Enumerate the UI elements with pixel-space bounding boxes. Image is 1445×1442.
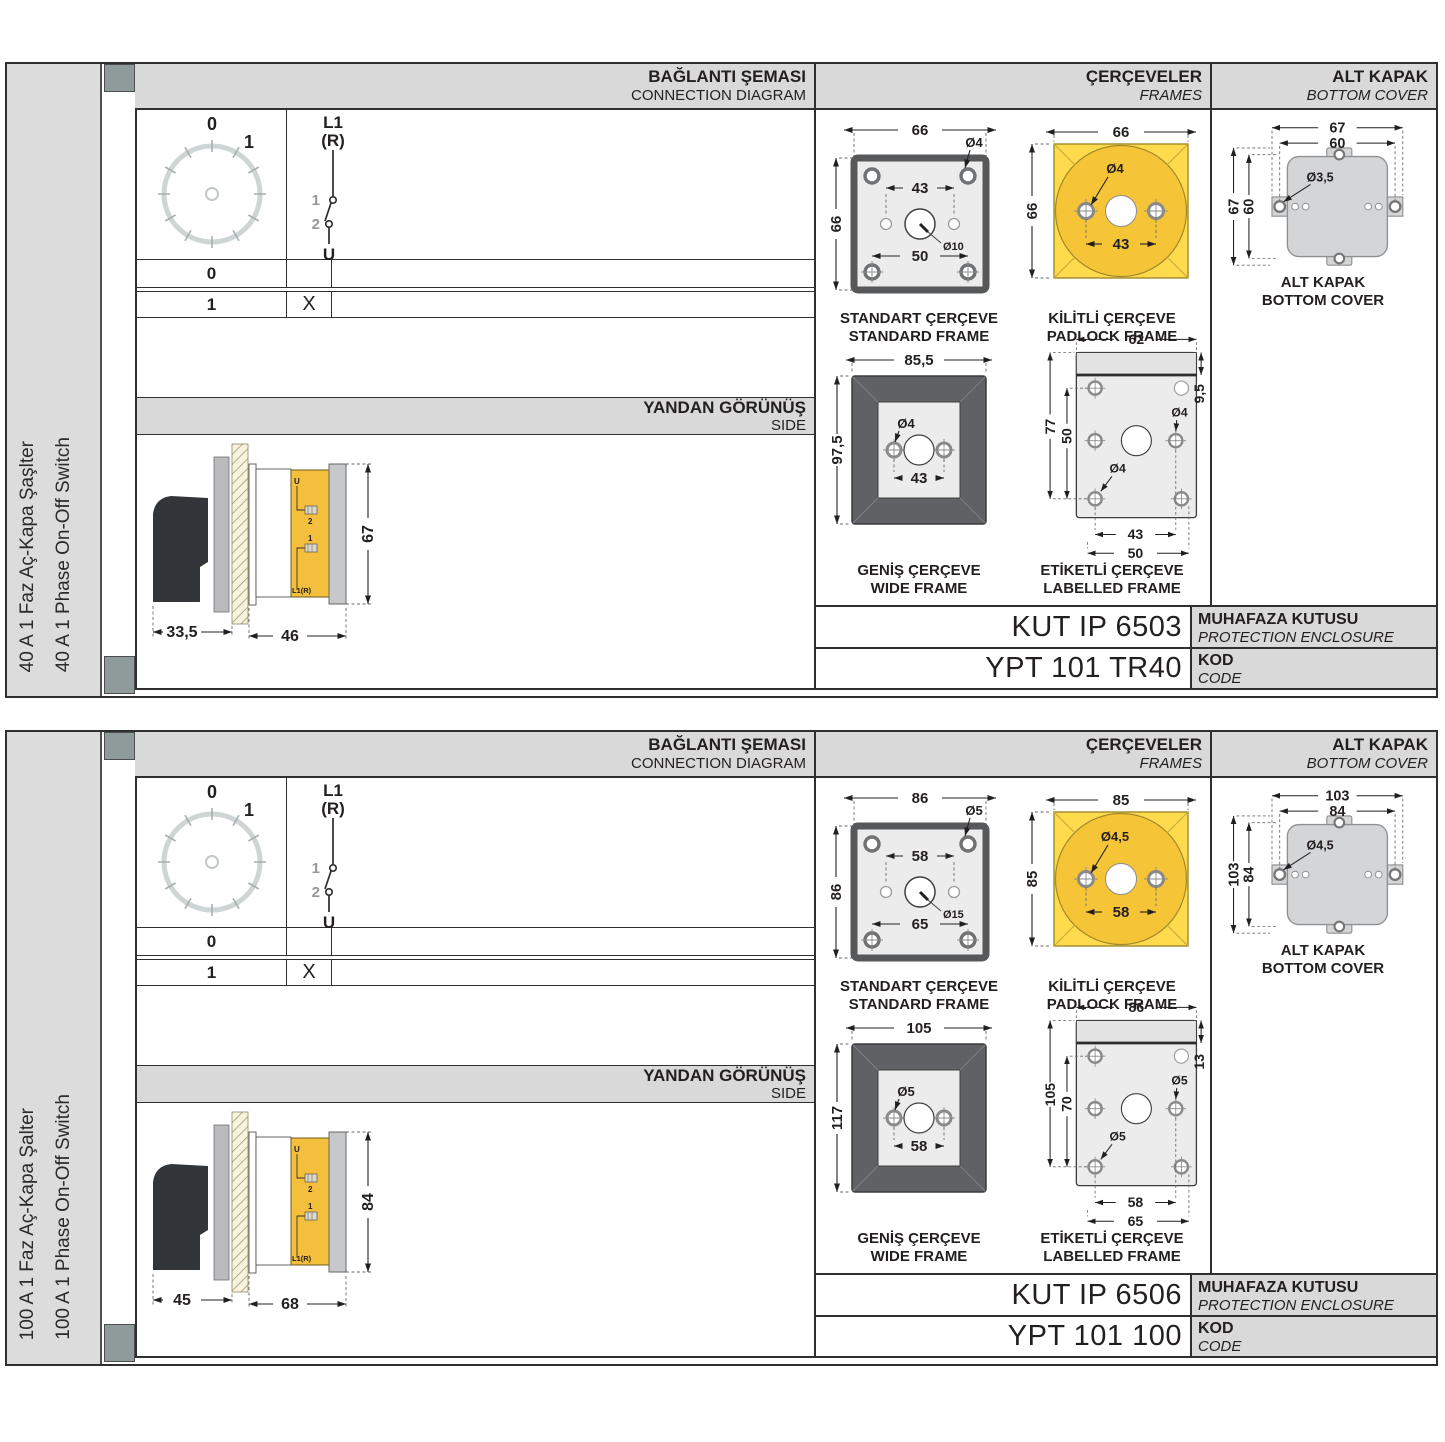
side-view-tr: YANDAN GÖRÜNÜŞ (643, 398, 806, 417)
switch-dial-drawing: 0 1 (137, 110, 287, 260)
enclosure-label-tr: MUHAFAZA KUTUSU (1198, 610, 1436, 629)
bottom-cover-panel: 103 84 103 84 Ø4,5 ALT KAPAK BOTTOM COVE… (1210, 778, 1436, 1273)
dim-w1: 103 (1325, 789, 1349, 805)
dim-height: 86 (828, 884, 845, 901)
frames-panel: Ø15 86 Ø5 58 65 86 STANDART ÇERÇEVE STAN… (814, 778, 1210, 1273)
dim-hole-a: Ø4 (1171, 405, 1187, 419)
header-bottom-cover: ALT KAPAK BOTTOM COVER (1210, 64, 1436, 110)
dim-outer: 65 (1128, 1213, 1144, 1229)
contact-mark (287, 260, 332, 287)
schematic-contact-1: 1 (312, 192, 320, 209)
index-tab-top (104, 732, 135, 760)
product-row-100a: 100 A 1 Faz Aç-Kapa Şalter 100 A 1 Phase… (5, 730, 1438, 1366)
side-view-tr: YANDAN GÖRÜNÜŞ (643, 1066, 806, 1085)
dim-center-hole: Ø15 (943, 909, 964, 921)
label-strip (1076, 1021, 1196, 1044)
side-view-band: YANDAN GÖRÜNÜŞ SIDE (137, 1065, 814, 1103)
product-row-40a: 40 A 1 Faz Aç-Kapa Şaşlter 40 A 1 Phase … (5, 62, 1438, 698)
index-tab-bottom (104, 656, 135, 694)
body-label-l1r: L1(R) (292, 586, 312, 595)
dim-body-depth: 46 (281, 628, 299, 645)
schematic-r: (R) (321, 131, 345, 150)
caption-tr: STANDART ÇERÇEVE (820, 978, 1018, 996)
caption-en: BOTTOM COVER (1220, 960, 1426, 978)
switch-schematic: L1 (R) 1 2 U (293, 780, 413, 930)
dim-hole: Ø5 (897, 1084, 914, 1099)
dim-w2: 84 (1329, 804, 1345, 820)
standard-frame-drawing: Ø15 86 Ø5 58 65 86 (824, 784, 1014, 981)
center-hole (1106, 196, 1137, 227)
caption-tr: STANDART ÇERÇEVE (820, 310, 1018, 328)
body-label-1: 1 (308, 1202, 313, 1211)
standard-frame-drawing: Ø10 66 Ø4 43 50 66 (824, 116, 1014, 313)
frames-panel: Ø10 66 Ø4 43 50 66 STANDART ÇERÇEVE STAN… (814, 110, 1210, 605)
code-label: KOD CODE (1190, 649, 1436, 688)
position-label: 1 (137, 960, 287, 985)
labelled-frame-drawing: 62 9,5 77 50 Ø4 Ø4 43 50 (1018, 330, 1206, 572)
dim-height: 117 (829, 1106, 846, 1130)
dial-position-0: 0 (207, 782, 217, 802)
position-label: 0 (137, 260, 287, 287)
position-label: 1 (137, 292, 287, 317)
schematic-contact-2: 2 (312, 884, 320, 901)
wide-frame-drawing: Ø5 58 105 117 (824, 1014, 1014, 1214)
dim-body-depth: 68 (281, 1296, 299, 1313)
schematic-contact-1: 1 (312, 860, 320, 877)
header-frames-en: FRAMES (1139, 755, 1202, 773)
dial-position-0: 0 (207, 114, 217, 134)
enclosure-code: KUT IP 6503 (816, 607, 1190, 647)
caption-tr: KİLİTLİ ÇERÇEVE (1014, 978, 1210, 996)
center-hole (1121, 426, 1151, 456)
caption-tr: KİLİTLİ ÇERÇEVE (1014, 310, 1210, 328)
dim-height: 66 (1024, 203, 1041, 220)
body-label-1: 1 (308, 534, 313, 543)
body-label-u: U (294, 477, 300, 486)
padlock-frame-drawing: 85 Ø4,5 58 85 (1018, 784, 1208, 981)
product-title-en: 40 A 1 Phase On-Off Switch (53, 437, 75, 672)
dim-corner-hole: Ø4 (965, 135, 983, 150)
dim-h2: 84 (1242, 867, 1258, 883)
enclosure-label: MUHAFAZA KUTUSU PROTECTION ENCLOSURE (1190, 607, 1436, 647)
bottom-cover-drawing: 67 60 67 60 Ø3,5 (1222, 118, 1422, 274)
mounting-plate (214, 457, 229, 612)
caption-tr: ETİKETLİ ÇERÇEVE (1014, 1230, 1210, 1248)
switch-schematic-cell: L1 (R) 1 2 U (287, 110, 814, 260)
switch-knob (153, 1164, 208, 1270)
dim-outer: 65 (912, 916, 929, 933)
dim-height: 66 (828, 216, 845, 233)
dim-h1: 67 (1226, 199, 1242, 215)
caption-tr: ALT KAPAK (1220, 942, 1426, 960)
dim-inner: 43 (1113, 236, 1130, 253)
dim-inner-height: 70 (1059, 1096, 1075, 1112)
header-frames: ÇERÇEVELER FRAMES (814, 732, 1210, 778)
enclosure-row: KUT IP 6503 MUHAFAZA KUTUSU PROTECTION E… (814, 605, 1436, 647)
header-frames-en: FRAMES (1139, 87, 1202, 105)
panel-hatched (232, 444, 248, 624)
side-view-en: SIDE (771, 417, 806, 434)
dim-inner: 58 (911, 1138, 928, 1155)
caption-en: LABELLED FRAME (1014, 580, 1210, 598)
labelled-frame-caption: ETİKETLİ ÇERÇEVE LABELLED FRAME (1014, 1230, 1210, 1266)
dim-outer: 50 (912, 248, 929, 265)
side-view-drawing: U 2 1 L1(R) 84 45 68 (147, 1108, 387, 1313)
dim-inner: 58 (912, 848, 929, 865)
dim-width: 66 (912, 122, 929, 139)
rear-plate (329, 464, 346, 604)
position-label: 0 (137, 928, 287, 955)
dim-inner-height: 50 (1059, 428, 1075, 444)
enclosure-label-en: PROTECTION ENCLOSURE (1198, 629, 1436, 646)
panel-hatched (232, 1112, 248, 1292)
position-table-row-1: 1 X (137, 291, 814, 318)
code-label-en: CODE (1198, 670, 1436, 687)
code-row: YPT 101 TR40 KOD CODE (814, 647, 1436, 690)
table-filler (332, 260, 814, 287)
dim-hole-a: Ø5 (1171, 1073, 1187, 1087)
header-cover-en: BOTTOM COVER (1307, 755, 1428, 773)
contact-mark: X (287, 292, 332, 317)
index-tab-bottom (104, 1324, 135, 1362)
dim-strip: 13 (1191, 1054, 1206, 1070)
code-label-en: CODE (1198, 1338, 1436, 1355)
dial-cell: 0 1 (137, 110, 287, 260)
switch-knob (153, 496, 208, 602)
table-filler (332, 292, 814, 317)
dim-hole-b: Ø5 (1109, 1130, 1125, 1144)
caption-tr: GENİŞ ÇERÇEVE (820, 1230, 1018, 1248)
caption-tr: ETİKETLİ ÇERÇEVE (1014, 562, 1210, 580)
product-code: YPT 101 TR40 (816, 649, 1190, 688)
center-hole (904, 1103, 934, 1133)
code-label: KOD CODE (1190, 1317, 1436, 1356)
dim-inner: 43 (911, 470, 928, 487)
dim-inner: 58 (1128, 1194, 1144, 1210)
schematic-l1: L1 (323, 113, 343, 132)
header-cover-tr: ALT KAPAK (1332, 735, 1428, 755)
caption-en: WIDE FRAME (820, 580, 1018, 598)
wide-frame-caption: GENİŞ ÇERÇEVE WIDE FRAME (820, 1230, 1018, 1266)
connection-diagram-panel: 0 1 L1 (R) 1 2 U 0 1 X (135, 778, 814, 1358)
enclosure-row: KUT IP 6506 MUHAFAZA KUTUSU PROTECTION E… (814, 1273, 1436, 1315)
table-filler (332, 928, 814, 955)
body-label-2: 2 (308, 1185, 313, 1194)
dim-hole: Ø4 (1106, 161, 1124, 176)
padlock-frame-drawing: 66 Ø4 43 66 (1018, 116, 1208, 313)
dim-hole: Ø4,5 (1307, 839, 1334, 853)
dim-width: 86 (1129, 999, 1145, 1015)
dim-width: 86 (912, 790, 929, 807)
contact-mark (287, 928, 332, 955)
caption-tr: GENİŞ ÇERÇEVE (820, 562, 1018, 580)
dim-height: 85 (1024, 871, 1041, 888)
dim-w1: 67 (1329, 121, 1345, 137)
dial-position-1: 1 (244, 800, 254, 820)
standard-frame-caption: STANDART ÇERÇEVE STANDARD FRAME (820, 978, 1018, 1014)
position-table-row-0: 0 (137, 928, 814, 956)
dim-knob-depth: 33,5 (166, 624, 197, 641)
dim-h1: 103 (1226, 863, 1242, 887)
dim-height: 105 (1042, 1083, 1058, 1107)
dim-hole: Ø3,5 (1307, 171, 1334, 185)
sidebar: 100 A 1 Faz Aç-Kapa Şalter 100 A 1 Phase… (7, 732, 102, 1364)
header-cover-tr: ALT KAPAK (1332, 67, 1428, 87)
dim-inner: 43 (1128, 526, 1144, 542)
connection-diagram-panel: 0 1 L1 (R) 1 2 U 0 1 X (135, 110, 814, 690)
rear-plate (329, 1132, 346, 1272)
schematic-contact-2: 2 (312, 216, 320, 233)
dim-w2: 60 (1329, 136, 1345, 152)
table-filler (332, 960, 814, 985)
dim-hole: Ø4,5 (1101, 829, 1129, 844)
dial-ticks (158, 140, 266, 248)
caption-en: LABELLED FRAME (1014, 1248, 1210, 1266)
header-cover-en: BOTTOM COVER (1307, 87, 1428, 105)
schematic-r: (R) (321, 799, 345, 818)
switch-housing (256, 1137, 291, 1265)
dial-position-1: 1 (244, 132, 254, 152)
enclosure-label-en: PROTECTION ENCLOSURE (1198, 1297, 1436, 1314)
dim-width: 105 (906, 1020, 931, 1037)
header-frames-tr: ÇERÇEVELER (1086, 67, 1202, 87)
dim-inner: 43 (912, 180, 929, 197)
code-label-tr: KOD (1198, 1319, 1436, 1338)
position-table-row-1: 1 X (137, 959, 814, 986)
dim-hole-b: Ø4 (1109, 462, 1125, 476)
mounting-plate (214, 1125, 229, 1280)
switch-dial-drawing: 0 1 (137, 778, 287, 928)
standard-frame-caption: STANDART ÇERÇEVE STANDARD FRAME (820, 310, 1018, 346)
header-frames: ÇERÇEVELER FRAMES (814, 64, 1210, 110)
caption-tr: ALT KAPAK (1220, 274, 1426, 292)
product-title-en: 100 A 1 Phase On-Off Switch (53, 1094, 75, 1340)
dim-width: 85 (1113, 792, 1130, 809)
body-label-u: U (294, 1145, 300, 1154)
product-title-tr: 40 A 1 Faz Aç-Kapa Şaşlter (17, 441, 39, 672)
dim-knob-depth: 45 (173, 1292, 191, 1309)
enclosure-label-tr: MUHAFAZA KUTUSU (1198, 1278, 1436, 1297)
header-connection-diagram: BAĞLANTI ŞEMASI CONNECTION DIAGRAM (135, 64, 814, 110)
header-connection-tr: BAĞLANTI ŞEMASI (648, 67, 806, 87)
labelled-frame-drawing: 86 13 105 70 Ø5 Ø5 58 65 (1018, 998, 1206, 1240)
dim-height: 67 (360, 525, 377, 543)
bottom-cover-panel: 67 60 67 60 Ø3,5 ALT KAPAK BOTTOM COVER (1210, 110, 1436, 605)
caption-en: STANDARD FRAME (820, 996, 1018, 1014)
dim-height: 97,5 (829, 435, 846, 464)
caption-en: STANDARD FRAME (820, 328, 1018, 346)
enclosure-label: MUHAFAZA KUTUSU PROTECTION ENCLOSURE (1190, 1275, 1436, 1315)
dim-strip: 9,5 (1191, 384, 1206, 404)
switch-schematic-cell: L1 (R) 1 2 U (287, 778, 814, 928)
header-bottom-cover: ALT KAPAK BOTTOM COVER (1210, 732, 1436, 778)
enclosure-code: KUT IP 6506 (816, 1275, 1190, 1315)
dim-width: 66 (1113, 124, 1130, 141)
product-code: YPT 101 100 (816, 1317, 1190, 1356)
bottom-cover-caption: ALT KAPAK BOTTOM COVER (1220, 942, 1426, 978)
dial-ticks (158, 808, 266, 916)
code-row: YPT 101 100 KOD CODE (814, 1315, 1436, 1358)
caption-en: BOTTOM COVER (1220, 292, 1426, 310)
wide-frame-caption: GENİŞ ÇERÇEVE WIDE FRAME (820, 562, 1018, 598)
dim-h2: 60 (1242, 199, 1258, 215)
dim-height: 77 (1042, 419, 1058, 435)
dim-height: 84 (360, 1193, 377, 1211)
index-tab-top (104, 64, 135, 92)
side-view-drawing: U 2 1 L1(R) 67 33,5 46 (147, 440, 387, 645)
position-table-row-0: 0 (137, 260, 814, 288)
code-label-tr: KOD (1198, 651, 1436, 670)
switch-housing (256, 469, 291, 597)
header-frames-tr: ÇERÇEVELER (1086, 735, 1202, 755)
product-title-tr: 100 A 1 Faz Aç-Kapa Şalter (17, 1108, 39, 1340)
center-hole (1121, 1094, 1151, 1124)
header-connection-tr: BAĞLANTI ŞEMASI (648, 735, 806, 755)
caption-en: WIDE FRAME (820, 1248, 1018, 1266)
side-view-band: YANDAN GÖRÜNÜŞ SIDE (137, 397, 814, 435)
dim-outer: 50 (1128, 545, 1144, 561)
center-hole (904, 435, 934, 465)
labelled-frame-caption: ETİKETLİ ÇERÇEVE LABELLED FRAME (1014, 562, 1210, 598)
dim-width: 85,5 (904, 352, 933, 369)
schematic-l1: L1 (323, 781, 343, 800)
center-hole (1106, 864, 1137, 895)
header-connection-diagram: BAĞLANTI ŞEMASI CONNECTION DIAGRAM (135, 732, 814, 778)
header-connection-en: CONNECTION DIAGRAM (631, 87, 806, 105)
contact-mark: X (287, 960, 332, 985)
dial-cell: 0 1 (137, 778, 287, 928)
dim-inner: 58 (1113, 904, 1130, 921)
side-view-en: SIDE (771, 1085, 806, 1102)
header-connection-en: CONNECTION DIAGRAM (631, 755, 806, 773)
dim-hole: Ø4 (897, 416, 915, 431)
dim-width: 62 (1129, 331, 1145, 347)
dim-center-hole: Ø10 (943, 241, 964, 253)
wide-frame-drawing: Ø4 43 85,5 97,5 (824, 346, 1014, 546)
switch-schematic: L1 (R) 1 2 U (293, 112, 413, 262)
body-label-l1r: L1(R) (292, 1254, 312, 1263)
bottom-cover-drawing: 103 84 103 84 Ø4,5 (1222, 786, 1422, 942)
sidebar: 40 A 1 Faz Aç-Kapa Şaşlter 40 A 1 Phase … (7, 64, 102, 696)
bottom-cover-caption: ALT KAPAK BOTTOM COVER (1220, 274, 1426, 310)
body-label-2: 2 (308, 517, 313, 526)
dim-corner-hole: Ø5 (965, 803, 982, 818)
label-strip (1076, 353, 1196, 376)
